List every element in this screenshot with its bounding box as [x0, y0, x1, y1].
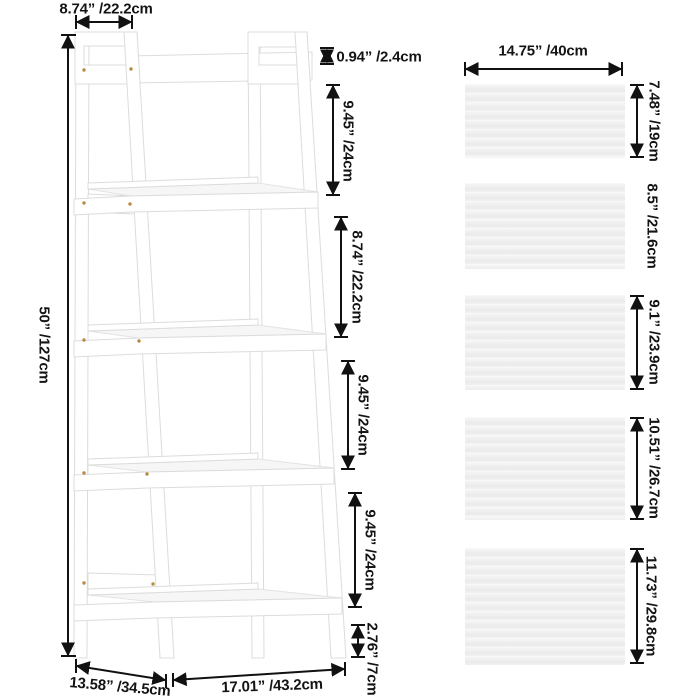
label-board-5-height: 11.73” /29.8cm — [643, 556, 660, 657]
label-board-3-height: 9.1” /23.9cm — [646, 299, 663, 384]
label-tier-gap-2: 8.74” /22.2cm — [349, 230, 366, 323]
dim-arrow-tier-gap-1 — [326, 85, 340, 195]
label-board-2-height: 8.5” /21.6cm — [644, 183, 661, 268]
dim-arrow-top-edge-thickness — [320, 48, 334, 64]
label-overall-height: 50” /127cm — [36, 306, 53, 383]
dim-arrow-tier-gap-2 — [334, 217, 348, 337]
dim-arrow-board-3-height — [630, 296, 644, 389]
label-top-edge-thickness: 0.94” /2.4cm — [336, 49, 421, 66]
dimension-diagram-canvas: 8.74” /22.2cm 50” /127cm 0.94” /2.4cm 9.… — [0, 0, 700, 700]
dim-arrow-board-1-height — [630, 85, 644, 157]
ladder-shelf-illustration — [74, 32, 346, 658]
label-tier-gap-4: 9.45” /24cm — [362, 509, 379, 590]
label-board-width: 14.75” /40cm — [498, 43, 587, 60]
dim-arrow-tier-gap-4 — [348, 493, 362, 607]
label-base-width: 17.01” /43.2cm — [221, 676, 323, 697]
dim-arrow-tier-gap-3 — [341, 361, 355, 469]
shelf-front-band-tier-5 — [74, 598, 342, 621]
dim-arrow-board-4-height — [630, 418, 644, 519]
label-tier-gap-1: 9.45” /24cm — [340, 100, 357, 181]
label-foot-height: 2.76” /7cm — [364, 622, 381, 695]
label-tier-gap-3: 9.45” /24cm — [355, 374, 372, 455]
label-top-width: 8.74” /22.2cm — [59, 1, 152, 18]
label-board-1-height: 7.48” /19cm — [646, 80, 663, 161]
label-board-4-height: 10.51” /26.7cm — [646, 417, 663, 518]
dim-arrow-board-width — [465, 62, 622, 76]
